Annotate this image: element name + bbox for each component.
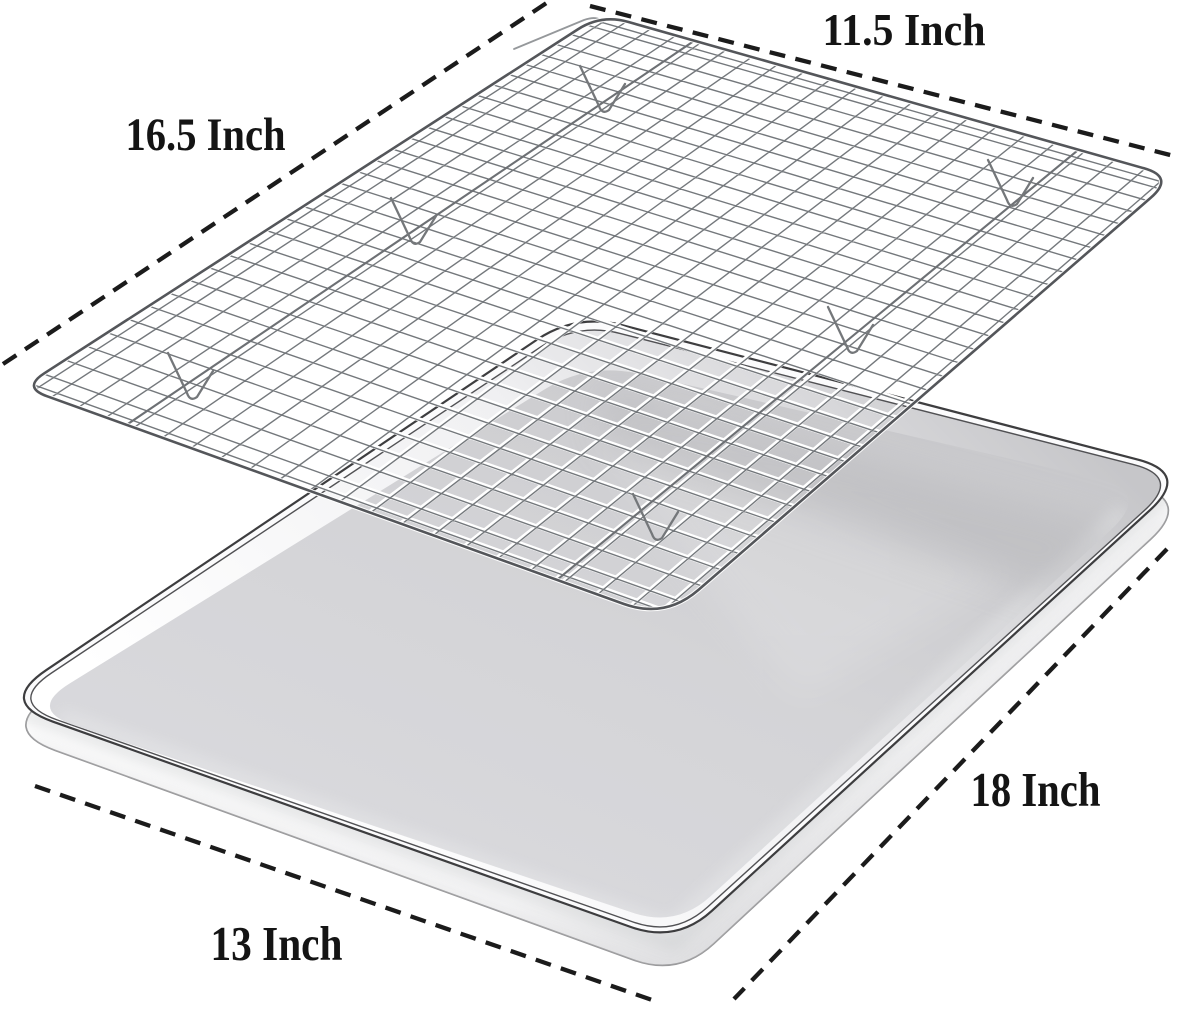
svg-text:18 Inch: 18 Inch <box>971 762 1101 817</box>
svg-text:13 Inch: 13 Inch <box>211 916 343 971</box>
svg-text:11.5 Inch: 11.5 Inch <box>823 4 986 55</box>
svg-text:16.5 Inch: 16.5 Inch <box>126 109 286 161</box>
